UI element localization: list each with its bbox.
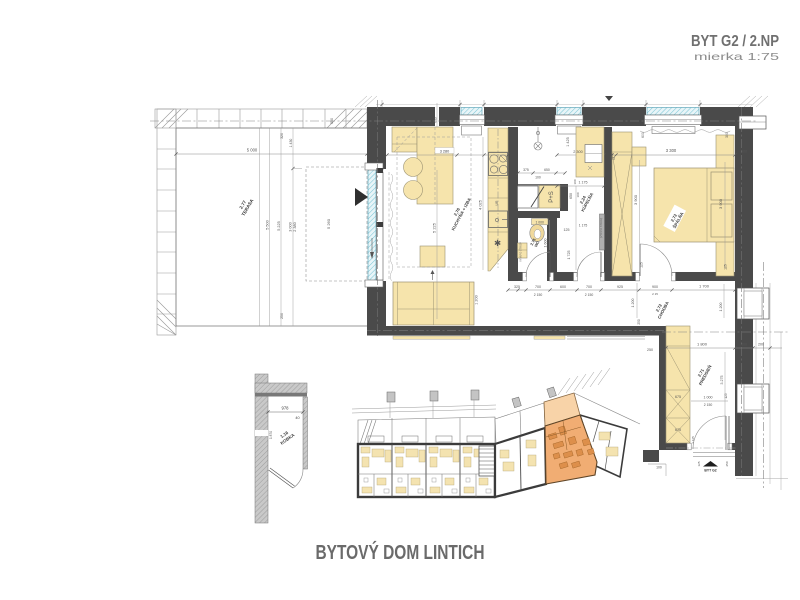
- svg-text:250: 250: [647, 348, 653, 352]
- svg-text:3 000: 3 000: [288, 222, 292, 232]
- svg-text:5 000: 5 000: [247, 148, 258, 153]
- svg-text:1 125: 1 125: [691, 436, 695, 444]
- svg-text:320: 320: [280, 133, 284, 139]
- svg-text:125: 125: [724, 393, 728, 399]
- svg-text:600: 600: [434, 117, 438, 123]
- svg-text:1 800: 1 800: [697, 342, 708, 347]
- svg-text:5 260: 5 260: [326, 218, 331, 229]
- svg-text:100: 100: [573, 179, 577, 184]
- svg-text:700: 700: [535, 285, 541, 289]
- svg-text:300: 300: [741, 343, 747, 347]
- svg-text:700: 700: [586, 285, 592, 289]
- svg-text:300: 300: [725, 132, 729, 138]
- svg-text:2 150: 2 150: [534, 293, 543, 297]
- svg-text:925: 925: [617, 285, 623, 289]
- svg-text:1 725: 1 725: [567, 251, 571, 260]
- svg-text:600: 600: [641, 132, 645, 138]
- svg-text:675: 675: [675, 395, 681, 399]
- svg-text:125: 125: [610, 157, 616, 161]
- svg-text:BYTOVÝ DOM LINTICH: BYTOVÝ DOM LINTICH: [316, 540, 485, 564]
- svg-text:250: 250: [637, 319, 641, 325]
- svg-text:VYM.PO STROP: VYM.PO STROP: [519, 242, 523, 262]
- svg-text:100: 100: [656, 466, 662, 470]
- svg-text:650: 650: [544, 168, 550, 172]
- svg-text:2 150: 2 150: [704, 403, 713, 407]
- svg-text:200: 200: [758, 343, 764, 347]
- svg-text:100: 100: [535, 176, 541, 180]
- svg-text:250: 250: [280, 313, 284, 319]
- svg-text:1 175: 1 175: [579, 224, 588, 228]
- svg-text:600: 600: [560, 285, 566, 289]
- svg-text:40: 40: [295, 416, 299, 420]
- svg-text:UR: UR: [495, 200, 499, 205]
- svg-text:✱: ✱: [494, 238, 501, 248]
- svg-text:2 300: 2 300: [573, 150, 583, 154]
- svg-text:3 900: 3 900: [633, 194, 638, 205]
- svg-text:125: 125: [724, 264, 728, 270]
- svg-text:125: 125: [697, 461, 701, 466]
- svg-text:(VYP.PO STROJ): (VYP.PO STROJ): [599, 218, 603, 238]
- svg-text:978: 978: [282, 406, 290, 411]
- svg-text:BYT G2 / 2.NP: BYT G2 / 2.NP: [691, 33, 779, 50]
- svg-text:5 500: 5 500: [265, 220, 269, 230]
- svg-text:1 600: 1 600: [544, 239, 548, 248]
- svg-text:mierka 1:75: mierka 1:75: [694, 51, 779, 63]
- svg-text:250: 250: [725, 461, 729, 466]
- svg-text:675: 675: [675, 428, 681, 432]
- svg-text:375: 375: [523, 168, 529, 172]
- svg-text:3 275: 3 275: [720, 376, 724, 385]
- svg-text:3 900: 3 900: [718, 198, 723, 209]
- svg-text:P+S: P+S: [549, 191, 555, 203]
- svg-text:125: 125: [564, 228, 570, 232]
- svg-text:1 700: 1 700: [699, 284, 710, 289]
- svg-text:1 200: 1 200: [475, 295, 479, 305]
- svg-text:1 000: 1 000: [704, 396, 713, 400]
- svg-text:650: 650: [569, 193, 573, 199]
- svg-text:1 430: 1 430: [289, 139, 293, 148]
- svg-text:900: 900: [652, 285, 658, 289]
- svg-text:5 225: 5 225: [277, 221, 281, 231]
- svg-text:1 000: 1 000: [535, 220, 544, 224]
- svg-text:1 175: 1 175: [579, 181, 588, 185]
- svg-text:1 870: 1 870: [269, 431, 273, 439]
- svg-text:2 150: 2 150: [585, 293, 594, 297]
- svg-text:4 025: 4 025: [478, 199, 483, 210]
- svg-text:325: 325: [514, 285, 520, 289]
- svg-text:100: 100: [576, 192, 580, 197]
- svg-text:2 380: 2 380: [293, 222, 297, 232]
- svg-text:BYT G2: BYT G2: [704, 469, 716, 473]
- svg-text:2 15: 2 15: [652, 292, 658, 296]
- svg-text:3 280: 3 280: [440, 149, 450, 153]
- svg-text:1 200: 1 200: [631, 299, 635, 308]
- svg-text:5 225: 5 225: [432, 222, 437, 233]
- svg-text:3 300: 3 300: [666, 148, 677, 153]
- svg-text:1 200: 1 200: [719, 303, 723, 312]
- svg-text:1 425: 1 425: [566, 137, 570, 147]
